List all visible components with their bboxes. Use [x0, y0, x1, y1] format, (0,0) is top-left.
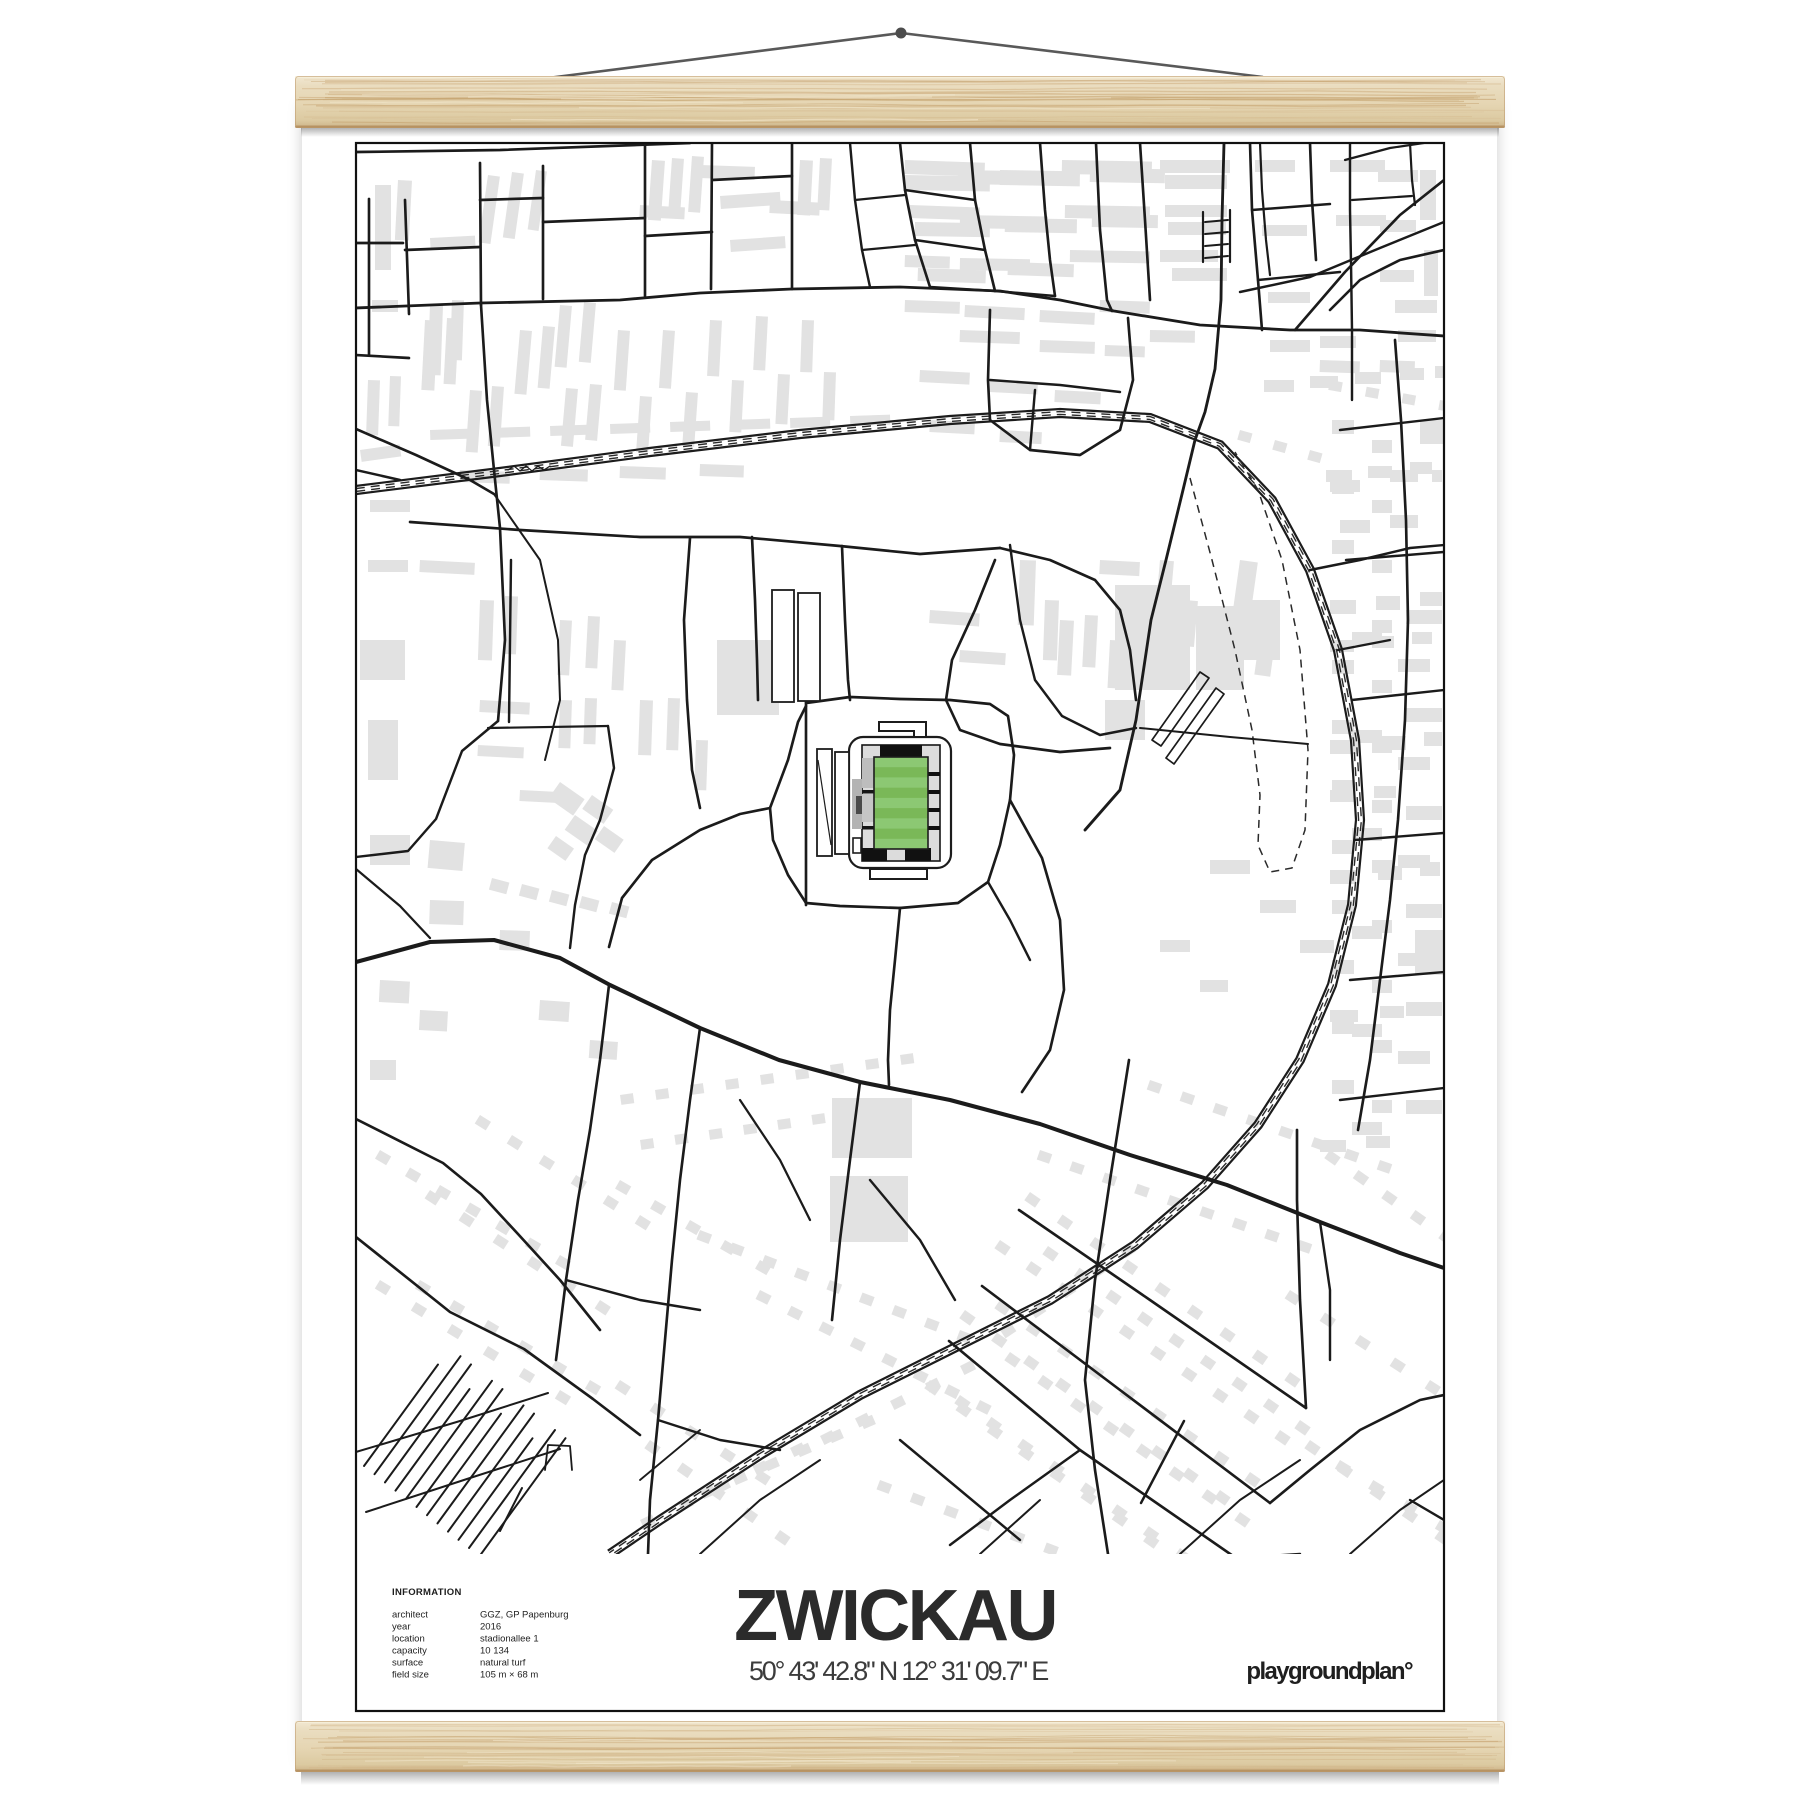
svg-text:field size: field size — [392, 1670, 429, 1681]
svg-text:GGZ, GP Papenburg: GGZ, GP Papenburg — [480, 1610, 569, 1621]
svg-text:location: location — [392, 1634, 425, 1645]
svg-text:INFORMATION: INFORMATION — [392, 1587, 462, 1598]
svg-text:ZWICKAU: ZWICKAU — [734, 1576, 1056, 1656]
svg-text:stadionallee 1: stadionallee 1 — [480, 1634, 539, 1645]
svg-text:capacity: capacity — [392, 1646, 427, 1657]
svg-text:natural turf: natural turf — [480, 1658, 526, 1669]
svg-text:10 134: 10 134 — [480, 1646, 509, 1657]
svg-text:surface: surface — [392, 1658, 423, 1669]
svg-text:2016: 2016 — [480, 1622, 501, 1633]
svg-text:year: year — [392, 1622, 410, 1633]
svg-text:105 m × 68 m: 105 m × 68 m — [480, 1670, 538, 1681]
svg-text:architect: architect — [392, 1610, 428, 1621]
svg-text:50° 43' 42.8" N 12° 31' 09.7": 50° 43' 42.8" N 12° 31' 09.7" E — [749, 1656, 1048, 1686]
svg-text:playgroundplan°: playgroundplan° — [1246, 1658, 1413, 1685]
